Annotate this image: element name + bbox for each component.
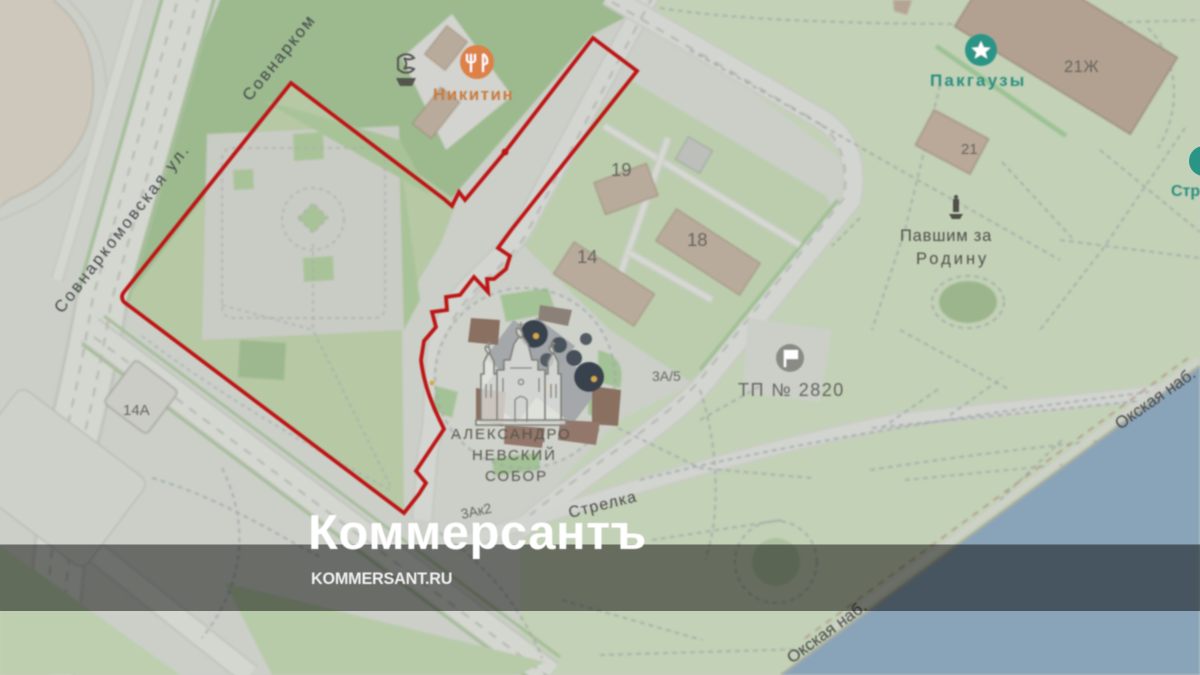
- svg-text:Родину: Родину: [916, 250, 989, 268]
- svg-text:21: 21: [961, 141, 978, 158]
- svg-text:21Ж: 21Ж: [1064, 58, 1099, 76]
- svg-text:Коммерсантъ: Коммерсантъ: [308, 506, 647, 560]
- svg-text:Стр: Стр: [1171, 183, 1200, 200]
- svg-text:KOMMERSANT.RU: KOMMERSANT.RU: [311, 570, 452, 588]
- svg-text:14: 14: [577, 246, 598, 267]
- svg-text:3А/5: 3А/5: [652, 368, 681, 384]
- svg-text:Пакгаузы: Пакгаузы: [930, 71, 1027, 90]
- svg-text:НЕВСКИЙ: НЕВСКИЙ: [472, 446, 557, 464]
- svg-text:СОБОР: СОБОР: [485, 468, 548, 485]
- svg-text:ТП № 2820: ТП № 2820: [738, 380, 845, 400]
- svg-text:19: 19: [611, 159, 632, 180]
- svg-text:Никитин: Никитин: [433, 85, 514, 104]
- svg-text:Павшим за: Павшим за: [900, 227, 992, 245]
- svg-text:18: 18: [687, 229, 708, 250]
- svg-text:АЛЕКСАНДРО: АЛЕКСАНДРО: [451, 426, 572, 443]
- svg-text:14А: 14А: [123, 402, 150, 419]
